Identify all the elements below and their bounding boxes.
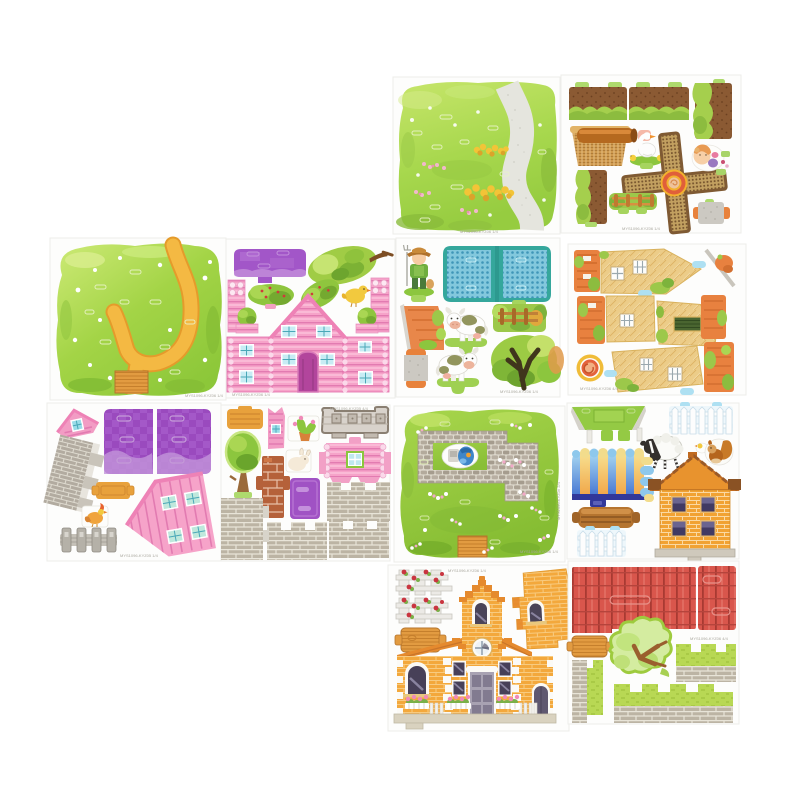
svg-text:MYS1096-KYZ06 1/4: MYS1096-KYZ06 1/4: [622, 226, 661, 231]
svg-text:MYS1096-KYZ06 4/4: MYS1096-KYZ06 4/4: [580, 386, 619, 391]
svg-text:MYS1096-KYZ05 1/4: MYS1096-KYZ05 1/4: [120, 553, 159, 558]
svg-text:MYS1096-KYZ06 1/4: MYS1096-KYZ06 1/4: [185, 393, 224, 398]
svg-text:MYS1096-KYZ06 2/4: MYS1096-KYZ06 2/4: [556, 481, 561, 520]
svg-text:MYS1096-KYZ05 4/4: MYS1096-KYZ05 4/4: [330, 406, 369, 411]
svg-text:MYS1096-KYZ06 1/4: MYS1096-KYZ06 1/4: [232, 392, 271, 397]
svg-text:MYS1096-KYZ06 1/4: MYS1096-KYZ06 1/4: [448, 568, 487, 573]
svg-text:MYS1096-KYZ06 4/4: MYS1096-KYZ06 4/4: [690, 636, 729, 641]
svg-text:MYS1096-KYZ06 1/4: MYS1096-KYZ06 1/4: [520, 549, 559, 554]
svg-text:MYS1096-KYZ06 1/4: MYS1096-KYZ06 1/4: [460, 229, 499, 234]
svg-text:MYS1096-KYZ06 1/4: MYS1096-KYZ06 1/4: [500, 389, 539, 394]
